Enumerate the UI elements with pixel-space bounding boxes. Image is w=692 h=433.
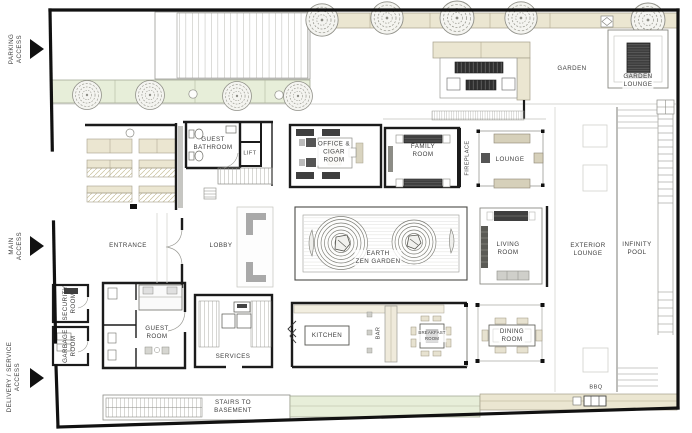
office-cigar-furniture (296, 129, 363, 179)
living-room-furniture (480, 208, 542, 284)
delivery-access-arrow-icon (30, 368, 44, 388)
pergola-strip-top (312, 13, 677, 28)
floor-plan: PARKING ACCESS MAIN ACCESS DELIVERY / SE… (0, 0, 692, 433)
entrance-path (157, 213, 167, 283)
parking-access-arrow-icon (30, 39, 44, 59)
main-access-arrow-icon (30, 236, 44, 256)
security-garbage-fixtures (57, 288, 78, 351)
guest-bathroom-fixtures (189, 126, 236, 161)
wall-shade (178, 126, 183, 208)
planter-storage-zone (87, 129, 176, 209)
lobby-furniture (237, 207, 273, 287)
family-room-furniture (388, 135, 450, 187)
stairs-to-basement (103, 395, 290, 420)
lift-stairs (204, 168, 272, 199)
guest-room-furniture (108, 285, 182, 360)
access-arrows (30, 39, 44, 388)
earth-zen-garden (295, 207, 467, 280)
top-driveway-deck (155, 12, 310, 79)
services-stairs (199, 301, 271, 347)
garden-lounge-pavilion (608, 30, 668, 88)
pool-and-terrace (555, 100, 674, 392)
breakfast-room-furniture (411, 316, 451, 356)
dining-room-pavilion (476, 303, 545, 363)
outdoor-kitchen (433, 42, 530, 100)
lounge-pavilion (477, 130, 545, 189)
floor-plan-drawing (0, 0, 692, 433)
louver-canopy (432, 111, 524, 120)
